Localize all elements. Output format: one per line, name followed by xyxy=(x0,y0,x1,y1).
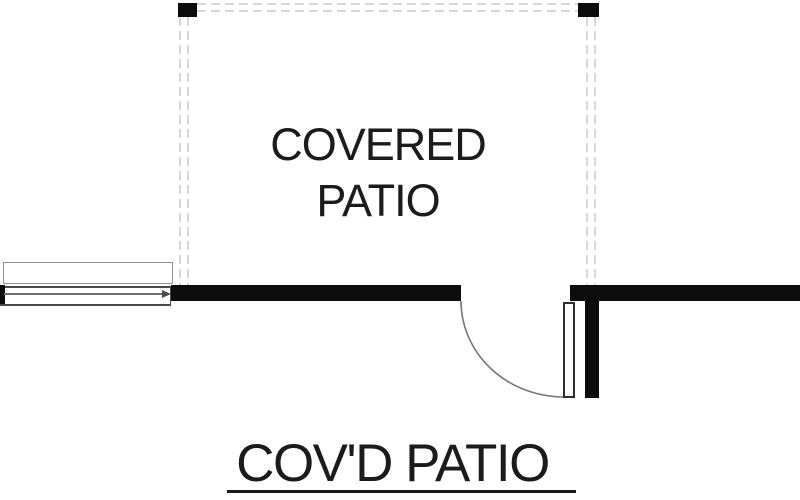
column-post-right xyxy=(578,3,599,17)
window-frame-outer xyxy=(3,262,173,284)
window-slide-track xyxy=(4,293,163,295)
wall-vertical-right xyxy=(585,285,599,398)
column-post-left xyxy=(178,3,197,17)
door-leaf xyxy=(563,302,575,398)
patio-outline-top xyxy=(197,10,578,12)
sheet-title-underline xyxy=(227,490,576,493)
door-swing-arc xyxy=(0,0,800,500)
patio-outline-top xyxy=(197,3,578,5)
window-frame-inner xyxy=(0,286,171,306)
room-label: COVERED PATIO xyxy=(168,117,588,229)
wall-bottom-left xyxy=(171,285,461,301)
wall-bottom-right xyxy=(570,285,800,301)
window-slide-arrow-icon xyxy=(162,290,171,298)
patio-outline-right xyxy=(594,17,596,285)
sheet-title: COV'D PATIO xyxy=(160,437,625,490)
floor-plan-canvas: COVERED PATIO COV'D PATIO xyxy=(0,0,800,500)
